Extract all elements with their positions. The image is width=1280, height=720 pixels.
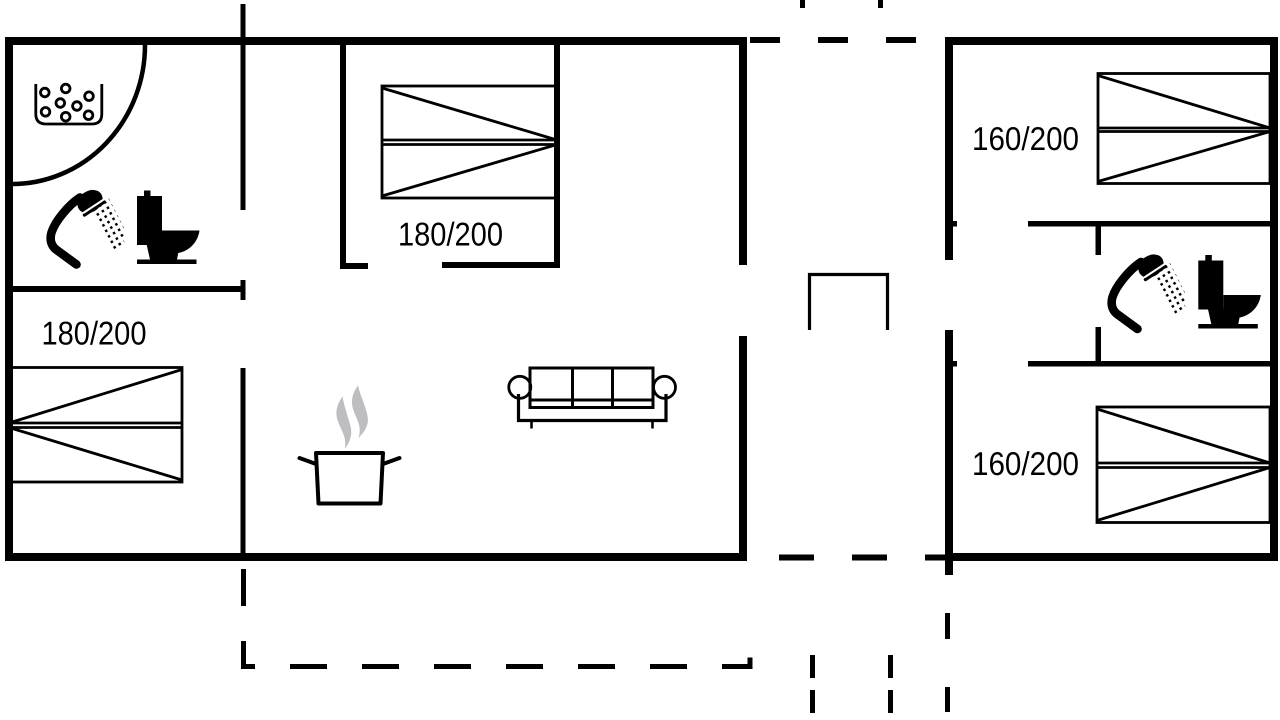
svg-text:160/200: 160/200	[972, 445, 1079, 482]
svg-text:180/200: 180/200	[42, 315, 147, 352]
svg-text:180/200: 180/200	[398, 216, 503, 253]
svg-text:160/200: 160/200	[972, 120, 1079, 157]
